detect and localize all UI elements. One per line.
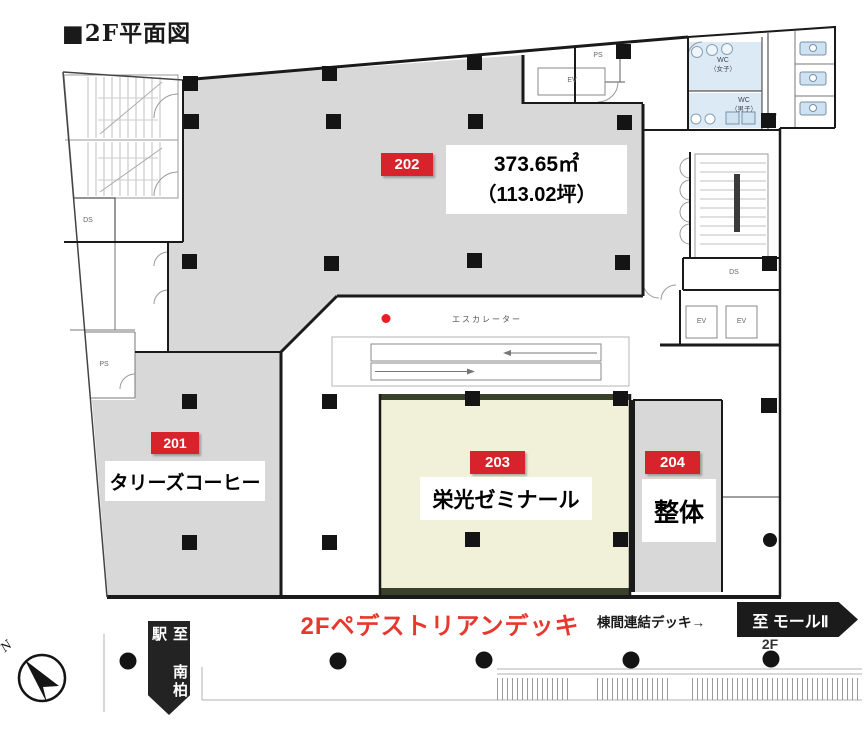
ev-right-a-label: EV: [687, 317, 716, 326]
wc-men-label: WC （男子）: [720, 97, 768, 114]
ev-top-label: EV: [558, 76, 586, 85]
stairs-right: [695, 154, 768, 258]
ev-right-b-label: EV: [727, 317, 756, 326]
room-204-badge: 204: [645, 451, 700, 474]
room-202-area-tsubo: （113.02坪）: [476, 180, 596, 210]
compass-icon: [19, 655, 65, 703]
pedestrian-deck-label: 2Fペデストリアンデッキ: [284, 606, 596, 641]
room-201-name: タリーズコーヒー: [105, 461, 265, 501]
wc-women-label: WC （女子）: [698, 57, 748, 74]
wc-men-top: WC: [720, 97, 768, 106]
wc-men-bottom: （男子）: [720, 106, 768, 114]
floor-plan-page: ■2F平面図 202 373.65㎡ （113.02坪） 201 タリーズコーヒ…: [0, 0, 864, 738]
ds-right-label: DS: [720, 268, 748, 277]
room-202-area-m2: 373.65㎡: [494, 149, 579, 181]
room-203-top-band: [380, 394, 630, 400]
ds-left-label: DS: [76, 216, 100, 225]
room-202-badge: 202: [381, 153, 433, 176]
room-203-bottom-band: [380, 588, 630, 595]
red-marker-dot: [382, 314, 391, 323]
deck-linework: [104, 634, 862, 712]
wc-women-bottom: （女子）: [698, 66, 748, 74]
ps-left-label: PS: [92, 360, 116, 369]
wc-women-top: WC: [698, 57, 748, 66]
escalator-label: エスカレーター: [428, 314, 546, 325]
room-202-area-box: 373.65㎡ （113.02坪）: [446, 145, 627, 214]
escalator: [332, 337, 629, 386]
room-203-badge: 203: [470, 451, 525, 474]
room-201-badge: 201: [151, 432, 199, 454]
bridge-deck-label: 棟間連結デッキ→: [597, 611, 745, 631]
room-203-name: 栄光ゼミナール: [420, 477, 592, 520]
floor-2f-label: 2F: [752, 636, 788, 652]
room-204-name: 整体: [642, 479, 716, 542]
to-station-banner: 至 南柏駅: [148, 621, 190, 715]
to-mall-badge: 至 モールⅡ: [737, 602, 858, 637]
ps-top-label: PS: [586, 51, 610, 60]
page-title: ■2F平面図: [62, 14, 191, 48]
